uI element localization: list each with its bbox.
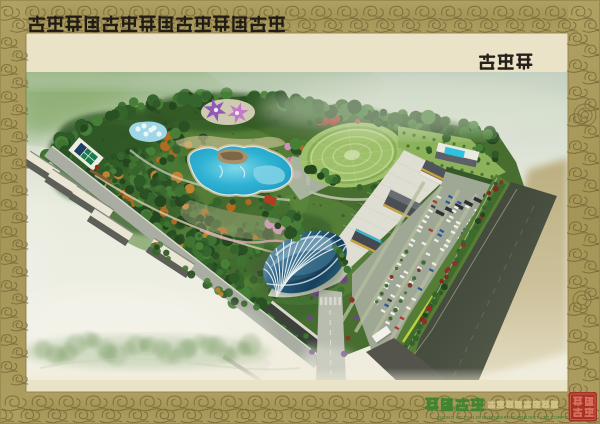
svg-text:ZHONG HE TIAN DI ENGINEERING P: ZHONG HE TIAN DI ENGINEERING PROJECT LTD… xyxy=(437,415,586,420)
